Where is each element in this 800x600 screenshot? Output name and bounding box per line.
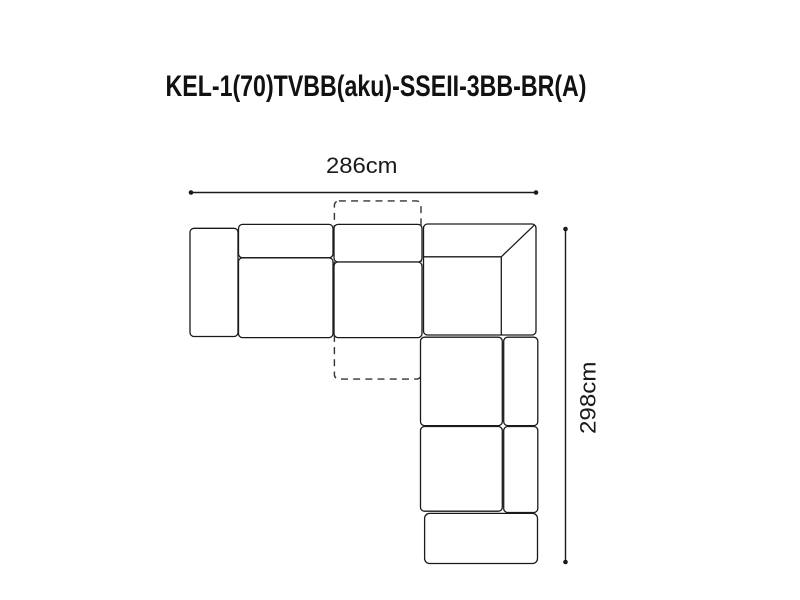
svg-text:KEL-1(70)TVBB(aku)-SSEII-3BB-B: KEL-1(70)TVBB(aku)-SSEII-3BB-BR(A) [166,70,587,103]
svg-text:298cm: 298cm [576,362,601,435]
svg-text:286cm: 286cm [326,153,398,178]
